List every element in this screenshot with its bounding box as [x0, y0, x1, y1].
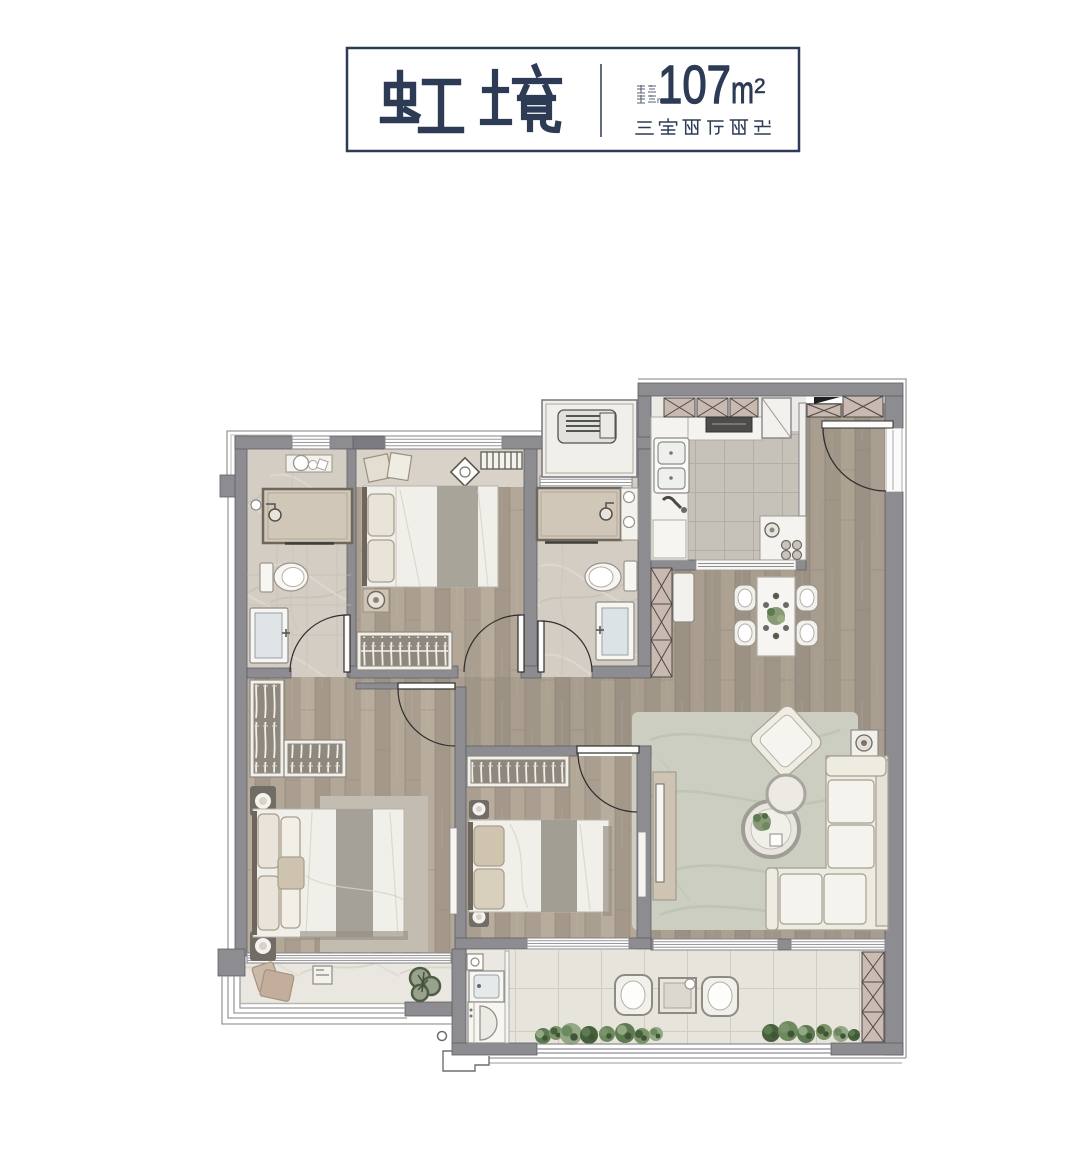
svg-text:m: m: [731, 70, 754, 112]
svg-text:107: 107: [658, 55, 731, 115]
svg-text:2: 2: [754, 75, 766, 98]
